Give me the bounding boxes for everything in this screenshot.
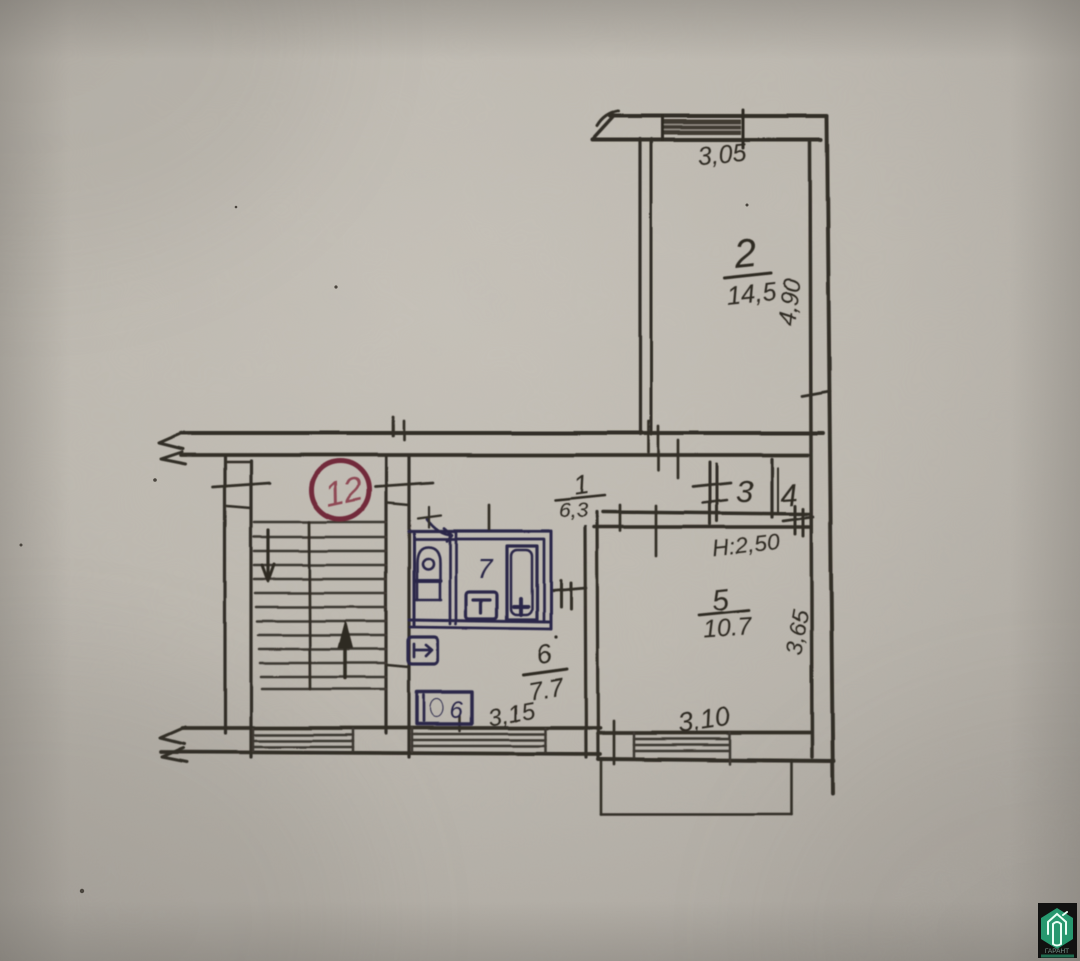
svg-text:6,3: 6,3 bbox=[559, 499, 589, 522]
svg-text:12: 12 bbox=[321, 470, 366, 515]
svg-text:14,5: 14,5 bbox=[725, 276, 779, 311]
svg-text:7: 7 bbox=[477, 553, 494, 584]
svg-text:2: 2 bbox=[731, 231, 759, 277]
svg-text:6: 6 bbox=[450, 697, 464, 724]
svg-text:3: 3 bbox=[736, 474, 753, 509]
svg-text:10.7: 10.7 bbox=[702, 612, 754, 643]
svg-text:3,05: 3,05 bbox=[697, 139, 748, 171]
svg-text:ГАРАНТ: ГАРАНТ bbox=[1045, 948, 1069, 955]
svg-text:4,90: 4,90 bbox=[774, 276, 807, 326]
